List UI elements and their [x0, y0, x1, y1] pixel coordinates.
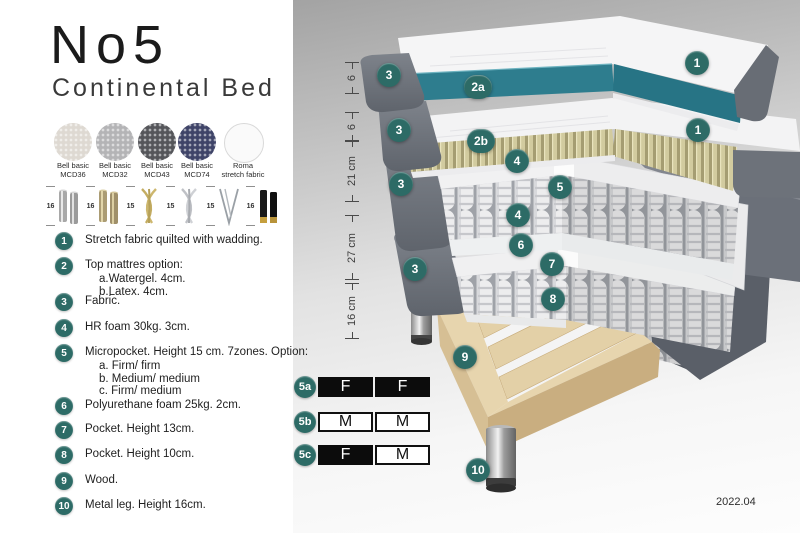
page-subtitle: Continental Bed: [52, 74, 275, 103]
spec-text: Pocket. Height 10cm.: [85, 448, 194, 460]
firmness-cell: M: [318, 412, 373, 432]
callout-badge: 2b: [467, 129, 495, 153]
spec-number-badge: 5: [55, 344, 73, 362]
spec-text: Polyurethane foam 25kg. 2cm.: [85, 399, 241, 411]
ruler-segment: 6: [345, 62, 359, 94]
fabric-swatch: [224, 123, 264, 163]
fabric-swatch: [96, 123, 134, 161]
leg-option: 16: [86, 184, 121, 228]
fabric-swatch: [54, 123, 92, 161]
callout-badge: 3: [387, 118, 411, 142]
cylinder-brass-leg-icon: [97, 186, 121, 226]
callout-badge: 4: [505, 149, 529, 173]
twisted-silver-leg-icon: [177, 186, 201, 226]
hairpin-leg-icon: [217, 186, 241, 226]
fabric-swatch: [178, 123, 216, 161]
firmness-row: M M: [318, 412, 430, 432]
spec-subtext: c. Firm/ medium: [99, 385, 181, 397]
spec-text: Stretch fabric quilted with wadding.: [85, 234, 263, 246]
leg-size-label: 16: [246, 186, 255, 226]
callout-badge: 3: [389, 172, 413, 196]
cylinder-chrome-leg-icon: [57, 186, 81, 226]
version-label: 2022.04: [716, 496, 756, 508]
leg-size-label: 15: [166, 186, 175, 226]
firmness-cell: F: [375, 377, 430, 397]
ruler-label: 6: [346, 75, 358, 81]
spec-text: Metal leg. Height 16cm.: [85, 499, 206, 511]
callout-badge: 10: [466, 458, 490, 482]
ruler-segment: 16 cm: [345, 283, 359, 339]
callout-badge: 9: [453, 345, 477, 369]
leg-size-label: 16: [86, 186, 95, 226]
ruler-label: 16 cm: [346, 296, 358, 326]
leg-option: 15: [166, 184, 201, 228]
leg-option: 16: [46, 184, 81, 228]
leg-option: 15: [126, 184, 161, 228]
ruler-label: 21 cm: [346, 156, 358, 186]
spec-number-badge: 8: [55, 446, 73, 464]
twisted-gold-leg-icon: [137, 186, 161, 226]
callout-badge: 4: [506, 203, 530, 227]
spec-text: Top mattres option:: [85, 259, 183, 271]
ruler-label: 6: [346, 124, 358, 130]
spec-number-badge: 1: [55, 232, 73, 250]
callout-badge: 1: [685, 51, 709, 75]
firmness-row-badge: 5c: [294, 444, 316, 466]
swatch-label: Romastretch fabric: [213, 161, 273, 179]
spec-text: Micropocket. Height 15 cm. 7zones. Optio…: [85, 346, 308, 358]
ruler-segment: 21 cm: [345, 140, 359, 202]
firmness-row: F M: [318, 445, 430, 465]
metal-leg-front: [486, 425, 516, 493]
spec-number-badge: 9: [55, 472, 73, 490]
spec-subtext: a.Watergel. 4cm.: [99, 273, 186, 285]
callout-badge: 8: [541, 287, 565, 311]
spec-text: Fabric.: [85, 295, 120, 307]
spec-text: Pocket. Height 13cm.: [85, 423, 194, 435]
firmness-row-badge: 5b: [294, 411, 316, 433]
ruler-label: 27 cm: [346, 233, 358, 263]
firmness-cell: M: [375, 412, 430, 432]
firmness-cell: F: [318, 377, 373, 397]
spec-text: HR foam 30kg. 3cm.: [85, 321, 190, 333]
leg-size-label: 16: [46, 186, 55, 226]
callout-badge: 1: [686, 118, 710, 142]
leg-size-label: 15: [206, 186, 215, 226]
firmness-row-badge: 5a: [294, 376, 316, 398]
spec-number-badge: 3: [55, 293, 73, 311]
page-title: No5: [50, 14, 170, 76]
callout-badge: 2a: [464, 75, 492, 99]
firmness-cell: M: [375, 445, 430, 465]
callout-badge: 6: [509, 233, 533, 257]
firmness-row: F F: [318, 377, 430, 397]
spec-number-badge: 6: [55, 397, 73, 415]
black-gold-tip-leg-icon: [257, 186, 281, 226]
page: 6 6 21 cm 27 cm 16 cm 1 3 2a 3 2b 1 4 3 …: [0, 0, 800, 533]
callout-badge: 5: [548, 175, 572, 199]
spec-text: Wood.: [85, 474, 118, 486]
ruler-segment: 6: [345, 112, 359, 142]
callout-badge: 7: [540, 252, 564, 276]
callout-badge: 3: [377, 63, 401, 87]
leg-option: 16: [246, 184, 281, 228]
ruler-segment: 27 cm: [345, 215, 359, 280]
leg-option: 15: [206, 184, 241, 228]
spec-subtext: b. Medium/ medium: [99, 373, 200, 385]
spec-number-badge: 4: [55, 319, 73, 337]
callout-badge: 3: [403, 257, 427, 281]
spec-number-badge: 7: [55, 421, 73, 439]
spec-subtext: a. Firm/ firm: [99, 360, 160, 372]
firmness-cell: F: [318, 445, 373, 465]
fabric-swatch: [138, 123, 176, 161]
spec-number-badge: 2: [55, 257, 73, 275]
spec-number-badge: 10: [55, 497, 73, 515]
leg-size-label: 15: [126, 186, 135, 226]
